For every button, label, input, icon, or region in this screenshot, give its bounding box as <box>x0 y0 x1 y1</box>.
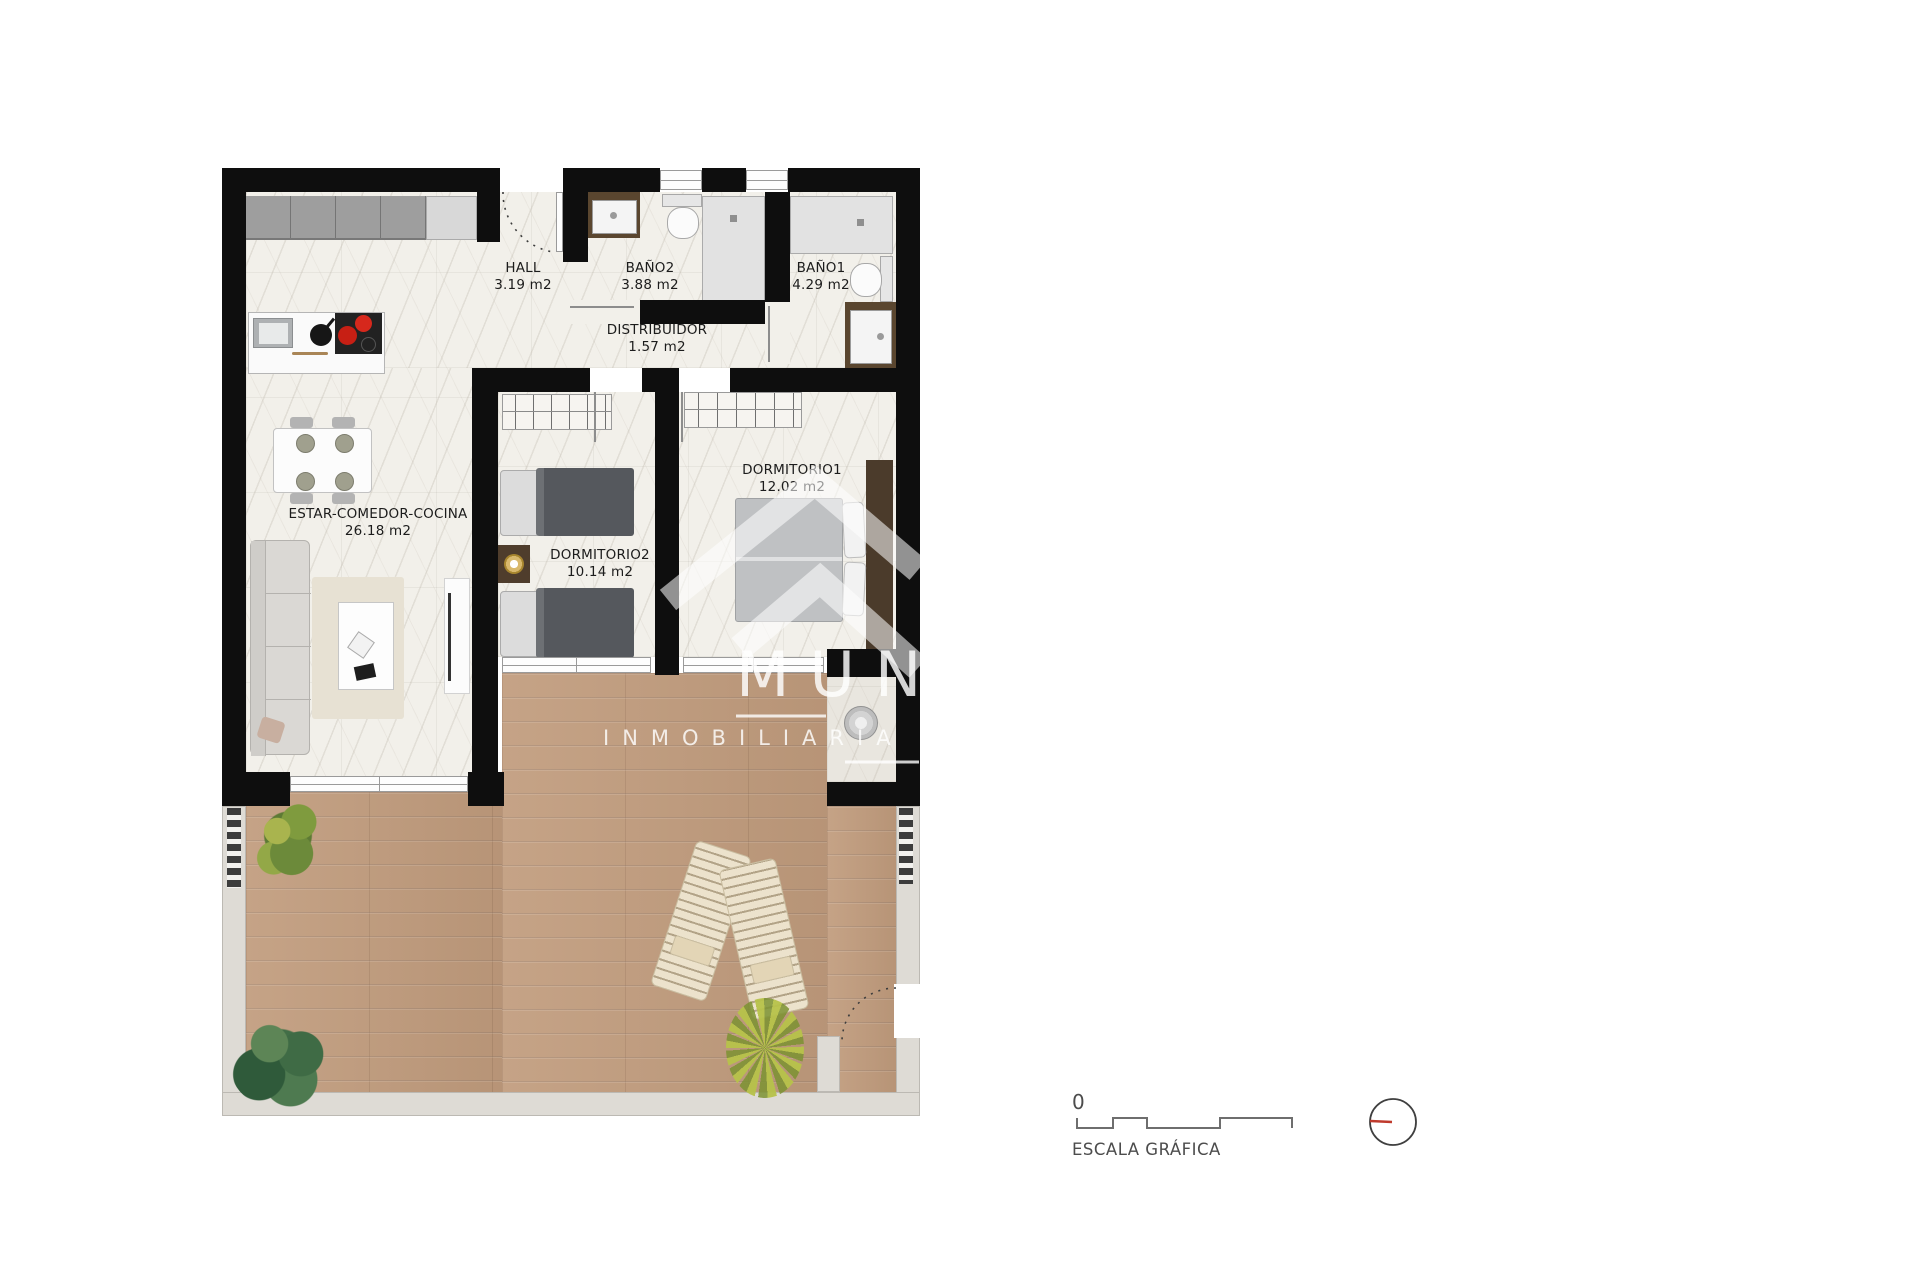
terrace-gate-wall-stub <box>817 1036 840 1092</box>
bedroom2-bed-single <box>500 588 634 658</box>
north-compass-icon <box>1370 1099 1416 1145</box>
wall <box>222 168 500 192</box>
room-area: 10.14 m2 <box>550 564 650 581</box>
wall <box>477 192 500 242</box>
sofa <box>250 540 310 755</box>
kitchen-hob <box>335 313 382 354</box>
door-leaf <box>594 392 596 442</box>
bed-pillow <box>842 501 867 558</box>
door-leaf <box>570 306 634 308</box>
window-bedroom2 <box>502 657 651 673</box>
bathroom1-vanity <box>845 302 896 370</box>
room-label-distribuidor: DISTRIBUIDOR 1.57 m2 <box>607 322 707 356</box>
room-name: DORMITORIO2 <box>550 547 650 564</box>
bathroom1-shower <box>790 196 893 254</box>
scale-zero-label: 0 <box>1072 1090 1085 1114</box>
bed-pillow <box>842 561 867 616</box>
bedroom1-headboard-panel <box>866 460 893 660</box>
room-name: ESTAR-COMEDOR-COCINA <box>289 506 468 523</box>
lamp-icon <box>504 554 524 574</box>
wall <box>222 772 290 806</box>
bathroom2-vanity <box>587 192 640 238</box>
room-area: 26.18 m2 <box>289 523 468 540</box>
room-name: BAÑO1 <box>792 260 850 277</box>
room-name: HALL <box>494 260 552 277</box>
wall <box>730 368 896 392</box>
room-label-dormitorio2: DORMITORIO2 10.14 m2 <box>550 547 650 581</box>
window-bedroom1 <box>683 657 824 673</box>
wall <box>222 168 246 806</box>
scale-caption: ESCALA GRÁFICA <box>1072 1140 1221 1159</box>
wall <box>472 368 498 802</box>
room-name: DISTRIBUIDOR <box>607 322 707 339</box>
terrace-gate-opening <box>894 984 922 1038</box>
plant <box>228 1008 332 1110</box>
door-leaf <box>681 392 683 442</box>
kitchen-fridge-cabinet <box>426 196 477 240</box>
wall <box>896 168 920 806</box>
terrace-railing-right <box>899 808 913 884</box>
room-label-hall: HALL 3.19 m2 <box>494 260 552 294</box>
wall <box>640 300 765 324</box>
wall <box>563 192 588 262</box>
room-label-estar: ESTAR-COMEDOR-COCINA 26.18 m2 <box>289 506 468 540</box>
dining-chair <box>290 417 313 428</box>
floorplan-page: ESTAR-COMEDOR-COCINA 26.18 m2 HALL 3.19 … <box>0 0 1920 1280</box>
wall <box>642 368 679 392</box>
room-name: DORMITORIO1 <box>742 462 842 479</box>
dining-table <box>273 428 372 493</box>
room-area: 3.19 m2 <box>494 277 552 294</box>
north-letter: N <box>1396 1113 1407 1131</box>
room-area: 3.88 m2 <box>621 277 679 294</box>
bedroom1-wardrobe <box>684 392 802 428</box>
room-area: 12.02 m2 <box>742 479 842 496</box>
bathroom2-toilet <box>662 194 702 240</box>
wall <box>702 168 746 192</box>
bedroom2-nightstand <box>498 545 530 583</box>
room-label-dormitorio1: DORMITORIO1 12.02 m2 <box>742 462 842 496</box>
wooden-spoon-icon <box>292 352 328 355</box>
tv-sideboard <box>444 578 470 694</box>
room-label-bano2: BAÑO2 3.88 m2 <box>621 260 679 294</box>
room-area: 1.57 m2 <box>607 339 707 356</box>
plant <box>252 795 324 885</box>
terrace-border-bottom <box>222 1092 920 1116</box>
room-area: 4.29 m2 <box>792 277 850 294</box>
wall <box>765 192 790 302</box>
bedroom2-bed-single <box>500 468 634 536</box>
door-leaf <box>768 306 770 362</box>
terrace-railing-left <box>227 808 241 888</box>
window <box>660 170 702 190</box>
window <box>746 170 788 190</box>
bedroom1-double-bed <box>735 498 843 622</box>
bathroom1-toilet <box>850 256 893 302</box>
room-label-bano1: BAÑO1 4.29 m2 <box>792 260 850 294</box>
wall <box>468 772 504 806</box>
wall <box>563 168 660 192</box>
bathroom2-shower <box>702 196 765 302</box>
dining-chair <box>332 493 355 504</box>
door-opening <box>563 300 640 324</box>
window-living <box>290 776 468 792</box>
dining-chair <box>290 493 313 504</box>
frying-pan-icon <box>310 324 332 346</box>
kitchen-sink <box>253 318 293 348</box>
palm-plant <box>726 998 804 1098</box>
kitchen-counter <box>246 196 426 240</box>
scale-bar <box>1077 1118 1292 1128</box>
terrace-round-table <box>844 706 878 740</box>
dining-chair <box>332 417 355 428</box>
entrance-door-leaf <box>556 192 563 252</box>
coffee-table <box>338 602 394 690</box>
room-name: BAÑO2 <box>621 260 679 277</box>
wall <box>827 649 920 677</box>
tv-icon <box>448 593 451 681</box>
wall <box>655 392 679 675</box>
wall <box>827 782 920 806</box>
